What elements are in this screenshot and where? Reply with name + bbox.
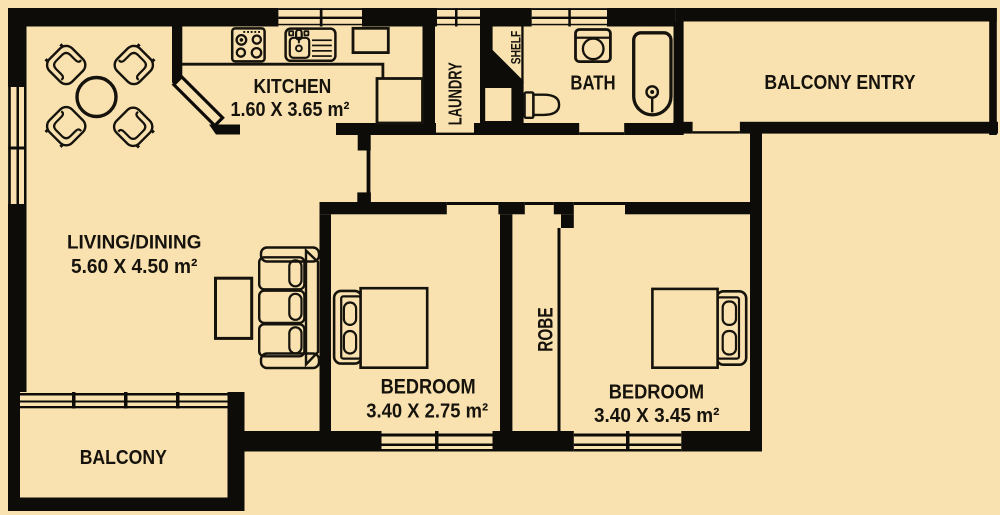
svg-text:BATH: BATH xyxy=(570,73,615,95)
svg-text:BALCONY ENTRY: BALCONY ENTRY xyxy=(764,72,916,94)
svg-text:SHELF: SHELF xyxy=(508,30,524,64)
svg-text:ROBE: ROBE xyxy=(533,307,557,351)
svg-text:3.40 X 3.45 m²: 3.40 X 3.45 m² xyxy=(594,404,720,427)
svg-text:3.40 X 2.75 m²: 3.40 X 2.75 m² xyxy=(366,400,488,423)
svg-text:BEDROOM: BEDROOM xyxy=(381,375,476,399)
svg-text:KITCHEN: KITCHEN xyxy=(254,75,332,98)
svg-text:LAUNDRY: LAUNDRY xyxy=(445,62,466,125)
svg-text:BEDROOM: BEDROOM xyxy=(609,382,704,404)
svg-text:5.60 X 4.50 m²: 5.60 X 4.50 m² xyxy=(71,255,198,278)
svg-text:1.60 X 3.65 m²: 1.60 X 3.65 m² xyxy=(231,99,350,121)
svg-text:BALCONY: BALCONY xyxy=(80,447,168,469)
svg-text:LIVING/DINING: LIVING/DINING xyxy=(67,232,201,254)
